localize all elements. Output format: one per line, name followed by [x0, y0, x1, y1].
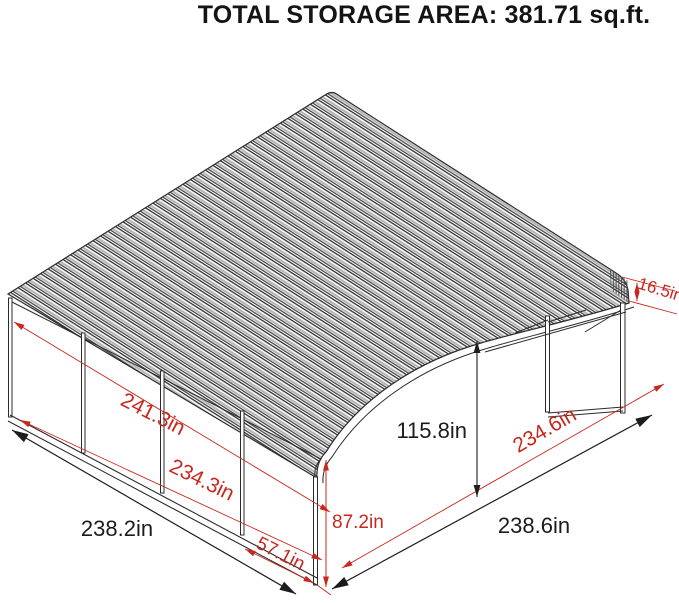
dim-open-side-depth: 234.6in: [342, 384, 664, 568]
dim-base-left-line: [12, 430, 296, 594]
dim-eave-height-label: 87.2in: [332, 512, 384, 533]
dim-open-side-line: [342, 384, 664, 568]
dim-roof-edge-height-label: 16.5in: [636, 274, 679, 306]
dim-front-bay-label: 57.1in: [253, 533, 309, 575]
diagram-canvas: 16.5in 241.3in 234.3in 57.1in 87.2in 234…: [0, 0, 679, 603]
page-title: TOTAL STORAGE AREA: 381.71 sq.ft.: [198, 1, 651, 30]
interior-post: [546, 316, 550, 412]
dim-base-right-label: 238.6in: [498, 513, 570, 538]
wall-post-4: [241, 411, 245, 535]
dim-eave-height: 87.2in: [317, 460, 384, 595]
dim-base-left-label: 238.2in: [81, 516, 153, 541]
dim-side-wall-top-label: 241.3in: [117, 388, 189, 440]
dim-base-right: 238.6in: [332, 415, 652, 589]
dim-base-right-line: [332, 415, 652, 589]
dim-eave-ext: [317, 585, 331, 595]
corner-post-right: [621, 303, 626, 413]
wall-post-2: [82, 333, 86, 453]
dim-peak-height-label: 115.8in: [396, 418, 467, 443]
dim-open-side-depth-label: 234.6in: [509, 403, 580, 457]
wall-post-corner-left: [9, 298, 13, 417]
wall-post-corner-front: [314, 477, 318, 585]
carport-dimension-diagram: 16.5in 241.3in 234.3in 57.1in 87.2in 234…: [0, 0, 679, 603]
roof-panel: [8, 93, 629, 479]
dim-side-wall-panel-label: 234.3in: [166, 455, 238, 506]
dim-roof-edge-ext-bottom: [629, 301, 677, 314]
dim-base-left: 238.2in: [12, 430, 296, 594]
